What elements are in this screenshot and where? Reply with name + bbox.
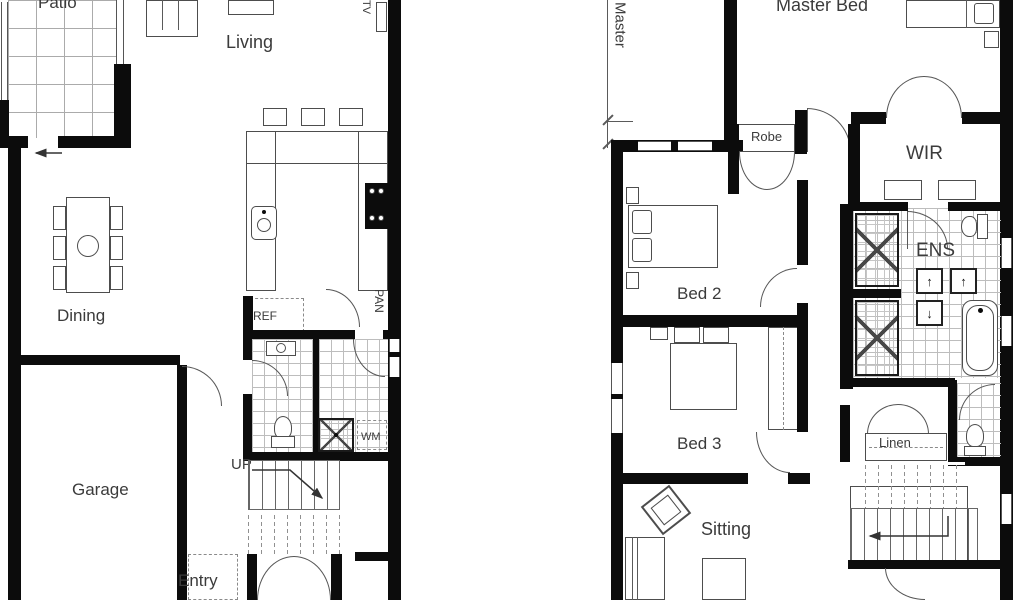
sofa (625, 537, 665, 600)
chair (110, 266, 123, 290)
wall (611, 394, 623, 399)
chair (53, 236, 66, 260)
wardrobe-shelf (884, 180, 922, 200)
patio-tiled-floor (8, 0, 120, 138)
wall (8, 355, 180, 365)
room-label-garage: Garage (72, 481, 129, 500)
cooktop-burner (378, 188, 384, 194)
room-label-bed3: Bed 3 (677, 435, 721, 454)
vanity-basin: ↓ (916, 300, 943, 326)
label-master-dimension: Master (611, 2, 628, 48)
double-door-left (739, 152, 767, 190)
double-door-right (898, 404, 929, 434)
bedside-table (626, 187, 639, 204)
dimension-line (607, 0, 608, 148)
wall (623, 315, 808, 327)
patio-entry-arrow (26, 146, 66, 162)
window (1001, 494, 1012, 524)
sofa-line (178, 0, 179, 30)
label-linen: Linen (879, 436, 911, 450)
sink-tap (262, 210, 266, 214)
sink-bowl (257, 218, 271, 232)
cooktop-burner (369, 188, 375, 194)
wall (243, 339, 252, 360)
toilet (961, 216, 977, 237)
bedside-table (626, 272, 639, 289)
room-label-ens: ENS (916, 241, 955, 262)
chair (53, 266, 66, 290)
wall (797, 327, 808, 432)
basin-bowl (276, 343, 286, 353)
label-robe: Robe (751, 130, 782, 144)
dimension-line (607, 121, 633, 122)
door-arc (807, 108, 851, 152)
wall (383, 330, 400, 339)
wall (948, 380, 957, 464)
wall (0, 136, 28, 148)
wardrobe-shelf (938, 180, 976, 200)
wall (948, 202, 1001, 211)
toilet-cistern (977, 214, 988, 239)
door-arc (885, 568, 925, 600)
room-label-sitting: Sitting (701, 520, 751, 540)
bath-tap (978, 308, 983, 313)
chair (110, 236, 123, 260)
pillow (703, 327, 729, 343)
bedside-table (984, 31, 999, 48)
bed (670, 343, 737, 410)
room-label-living: Living (226, 33, 273, 53)
wall (621, 473, 748, 484)
pillow (974, 3, 994, 24)
wall (671, 140, 678, 152)
sofa-line (632, 537, 633, 600)
label-tv: TV (360, 0, 372, 14)
pillow (632, 238, 652, 262)
wall (355, 552, 400, 561)
window (1, 2, 8, 102)
wall (851, 112, 886, 124)
bedside-table (650, 327, 668, 340)
label-wm: WM (361, 431, 381, 443)
toilet-cistern (964, 446, 986, 456)
room-label-wir: WIR (906, 144, 943, 165)
cooktop-burner (369, 215, 375, 221)
wall (8, 148, 21, 600)
pillow (674, 327, 700, 343)
wall (962, 112, 1001, 124)
chair (53, 206, 66, 230)
room-label-bed2: Bed 2 (677, 285, 721, 304)
wall (848, 124, 860, 204)
toilet (966, 424, 984, 447)
floor-plan-canvas: Patio Living TV REF PAN WM (0, 0, 1024, 600)
stool (263, 108, 287, 126)
vanity-basin: ↑ (916, 268, 943, 294)
double-door-left (257, 556, 294, 600)
sofa (146, 0, 198, 37)
room-label-master-bed: Master Bed (776, 0, 868, 16)
double-door-left (867, 404, 898, 434)
label-pan: PAN (372, 289, 385, 313)
bed-line (966, 0, 967, 28)
window (1001, 316, 1012, 346)
wall (331, 554, 342, 600)
sofa-line (162, 0, 163, 30)
staircase-down-cut (865, 462, 965, 508)
wall (58, 136, 124, 148)
door-arc (326, 289, 360, 327)
double-door-right (924, 76, 962, 118)
door-arc (760, 268, 797, 307)
shower-drain (334, 433, 338, 437)
stairs-up-arrow (250, 462, 342, 508)
door-arc (756, 432, 790, 473)
sofa-line (637, 537, 638, 600)
wall (840, 378, 955, 387)
wall (728, 124, 739, 194)
wall (388, 0, 401, 600)
wall (243, 394, 252, 452)
wall (243, 330, 355, 339)
shower (855, 300, 899, 376)
wall (848, 202, 908, 211)
table-centerpiece (77, 235, 99, 257)
wall (788, 473, 810, 484)
wall (389, 352, 400, 357)
double-door-right (767, 152, 795, 190)
cooktop-burner (378, 215, 384, 221)
side-table (228, 0, 274, 15)
table (702, 558, 746, 600)
window (116, 0, 124, 68)
staircase-up-cut (248, 512, 340, 554)
wall (795, 110, 807, 154)
wall (247, 554, 257, 600)
dimension-tick (602, 114, 613, 125)
room-label-entry: Entry (178, 572, 218, 591)
chair (110, 206, 123, 230)
vanity-basin: ↑ (950, 268, 977, 294)
label-ref: REF (253, 310, 277, 323)
stairs-down-arrow (854, 512, 954, 548)
door-arc (182, 366, 222, 406)
tv-cabinet (376, 2, 387, 32)
stool (339, 108, 363, 126)
pillow (632, 210, 652, 234)
room-label-patio: Patio (38, 0, 77, 13)
double-door-left (886, 76, 924, 118)
shower (855, 213, 899, 287)
toilet-cistern (271, 436, 295, 448)
wall (840, 405, 850, 462)
stool (301, 108, 325, 126)
room-label-dining: Dining (57, 307, 105, 326)
wardrobe-track (783, 327, 784, 430)
wall (797, 180, 808, 265)
bathtub-inner (966, 305, 994, 371)
double-door-right (294, 556, 331, 600)
wall (848, 289, 901, 298)
window (1001, 238, 1012, 268)
